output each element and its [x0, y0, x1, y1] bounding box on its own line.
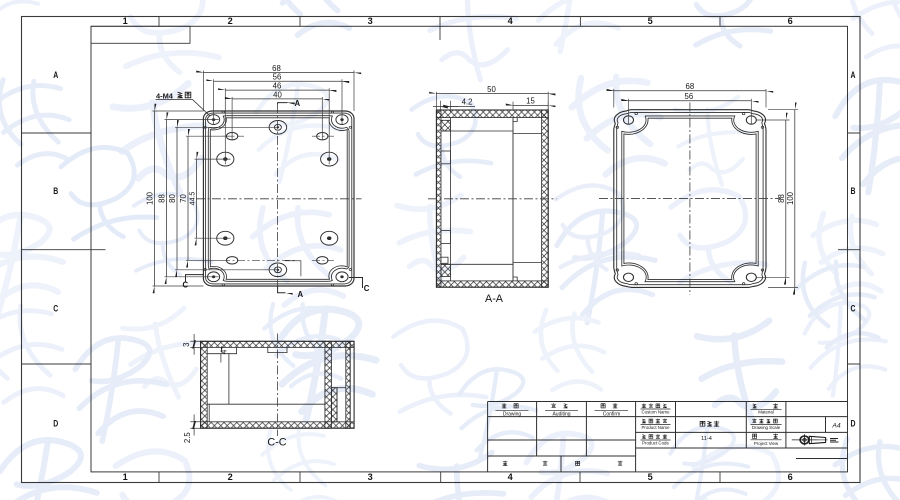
svg-text:2: 2 — [228, 16, 233, 26]
svg-text:B: B — [851, 186, 856, 196]
svg-text:B: B — [53, 186, 58, 196]
svg-text:C: C — [364, 284, 370, 293]
svg-text:Drawing Scale: Drawing Scale — [752, 425, 781, 430]
svg-text:C: C — [183, 281, 189, 290]
svg-text:2: 2 — [228, 472, 233, 482]
svg-text:5: 5 — [648, 16, 653, 26]
svg-text:Product Name: Product Name — [641, 425, 670, 430]
svg-text:6: 6 — [788, 16, 793, 26]
svg-text:Product Code: Product Code — [642, 441, 669, 446]
svg-text:3: 3 — [368, 16, 373, 26]
svg-text:Auditing: Auditing — [552, 411, 570, 417]
svg-text:A-A: A-A — [485, 293, 504, 305]
svg-text:Drawing: Drawing — [503, 411, 522, 417]
svg-text:50: 50 — [487, 85, 496, 94]
svg-text:56: 56 — [273, 73, 282, 82]
svg-text:Confirm: Confirm — [603, 411, 621, 417]
svg-text:88: 88 — [777, 194, 786, 203]
svg-text:4: 4 — [508, 472, 513, 482]
svg-text:4: 4 — [220, 349, 229, 354]
svg-text:1: 1 — [123, 16, 128, 26]
svg-text:15: 15 — [526, 96, 535, 105]
svg-text:1: 1 — [123, 472, 128, 482]
svg-text:A4: A4 — [831, 422, 841, 429]
svg-text:Project View: Project View — [754, 441, 779, 446]
svg-text:Material: Material — [758, 410, 774, 415]
svg-text:6: 6 — [788, 472, 793, 482]
svg-text:3: 3 — [368, 472, 373, 482]
svg-text:68: 68 — [272, 64, 281, 73]
svg-text:100: 100 — [786, 191, 795, 205]
svg-text:D: D — [851, 418, 856, 428]
svg-text:2.5: 2.5 — [183, 432, 192, 444]
svg-text:56: 56 — [685, 92, 694, 101]
svg-text:D: D — [53, 418, 58, 428]
svg-text:68: 68 — [686, 82, 695, 91]
svg-text:5: 5 — [648, 472, 653, 482]
svg-text:Custom Name: Custom Name — [641, 410, 670, 415]
